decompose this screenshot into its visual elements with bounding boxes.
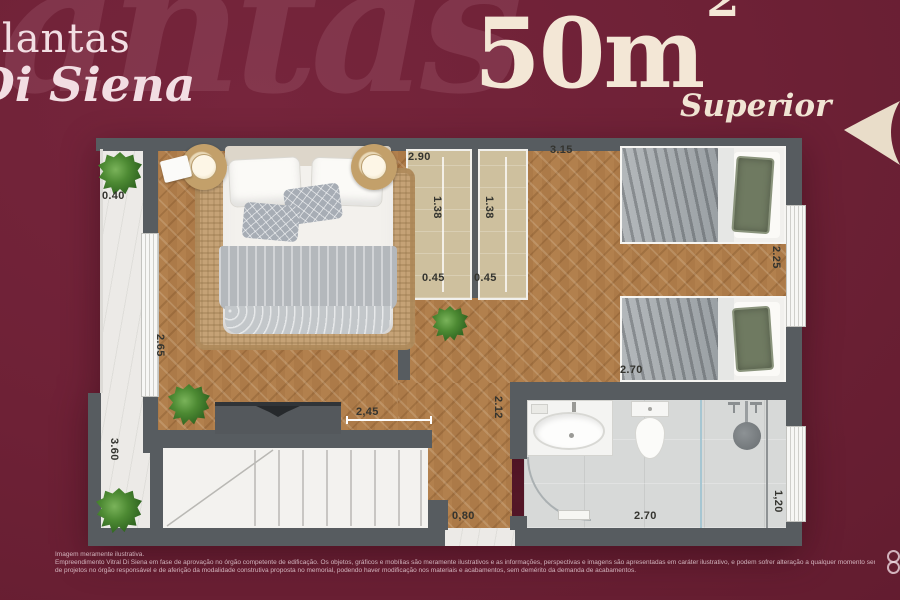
- dim-suite-depth: 2.65: [154, 334, 166, 357]
- disclaimer-line-3: de projetos no órgão responsável e de af…: [55, 567, 875, 575]
- dim-balcony-length: 3.60: [108, 438, 120, 461]
- lamp-left: [191, 154, 217, 180]
- twin-bed-1-blanket: [622, 148, 720, 242]
- desk-dimension-line: [346, 419, 432, 421]
- toilet-tank: [631, 401, 669, 417]
- wall-bathroom-west-lower: [510, 516, 527, 530]
- twin-bed-2: [620, 296, 786, 382]
- master-blanket: [219, 246, 397, 310]
- floor-plan: 0.40 3.60 2.65 2.90 1.38 1.38 0.45 0.45 …: [88, 138, 806, 548]
- dim-closet-run: 2.90: [408, 151, 431, 163]
- dim-bedroom2-width: 3.15: [550, 144, 573, 156]
- disclaimer: Imagem meramente ilustrativa. Empreendim…: [55, 551, 875, 575]
- master-bed-footband: [225, 306, 391, 334]
- twin-bed-2-accent-pillow: [732, 306, 774, 372]
- toilet-flush-button: [648, 407, 652, 411]
- bathroom-door-leaf: [558, 510, 590, 520]
- dim-balcony-width: 0.40: [102, 190, 125, 202]
- bathroom-window: [786, 426, 806, 522]
- shower-glass-panel: [700, 400, 702, 528]
- bedroom2-window: [786, 205, 806, 327]
- sink-faucet: [572, 402, 576, 412]
- wall-bathroom-west-upper: [510, 382, 527, 459]
- staircase: [163, 448, 428, 528]
- dim-bath-window: 1,20: [772, 490, 784, 513]
- dim-bedroom2-length: 2.70: [620, 364, 643, 376]
- soap-dish: [531, 404, 548, 414]
- dim-hall-depth: 2.12: [492, 396, 504, 419]
- dim-closet-b-depth: 1.38: [483, 196, 495, 219]
- disclaimer-line-2: Empreendimento Vitral Di Siena em fase d…: [55, 559, 875, 567]
- dim-bedroom2-depth: 2.25: [770, 246, 782, 269]
- area-exponent: 2: [706, 0, 739, 28]
- disclaimer-line-1: Imagem meramente ilustrativa.: [55, 551, 875, 559]
- sink-basin: [533, 412, 605, 450]
- shower-valve-1: [728, 402, 740, 405]
- wall-left-lower: [88, 393, 101, 530]
- tv-console-notch: [256, 406, 300, 417]
- partial-logo-icon: [887, 550, 900, 578]
- shower-valve-2: [750, 402, 762, 405]
- closet-b-rail: [505, 157, 507, 292]
- dim-desk-width: 2,45: [356, 406, 379, 418]
- sink-drain: [569, 433, 574, 438]
- dim-closet-b-width: 0.45: [474, 272, 497, 284]
- shower-arm: [745, 401, 748, 423]
- page-title: Plantas Di Siena: [0, 16, 195, 113]
- dim-closet-a-width: 0.45: [422, 272, 445, 284]
- shower-divider: [766, 400, 768, 528]
- accent-pillow-2: [242, 202, 301, 243]
- wall-stair-stub: [428, 500, 448, 530]
- toilet-bowl: [635, 417, 665, 459]
- bathroom-counter: [527, 400, 613, 456]
- title-line-1: Plantas: [0, 16, 195, 62]
- dim-bath-width: 2.70: [634, 510, 657, 522]
- dim-hall-passage: 0,80: [452, 510, 475, 522]
- stair-landing-opening: [445, 528, 515, 546]
- wall-balcony-upper: [143, 149, 158, 235]
- twin-bed-1: [620, 146, 786, 244]
- nightstand-right: [351, 144, 397, 190]
- next-arrow-icon[interactable]: [844, 98, 900, 168]
- twin-bed-1-accent-pillow: [731, 156, 774, 234]
- balcony-railing: [100, 149, 103, 393]
- toilet: [631, 401, 669, 459]
- wall-stairs-west: [150, 448, 163, 530]
- variant-label: Superior: [680, 88, 831, 124]
- lamp-right: [361, 154, 387, 180]
- shower-head: [733, 422, 761, 450]
- master-balcony-window: [141, 233, 159, 397]
- dim-closet-a-depth: 1.38: [431, 196, 443, 219]
- tv-console: [215, 402, 341, 434]
- title-line-2: Di Siena: [0, 58, 195, 113]
- wall-bathroom-north: [524, 382, 790, 400]
